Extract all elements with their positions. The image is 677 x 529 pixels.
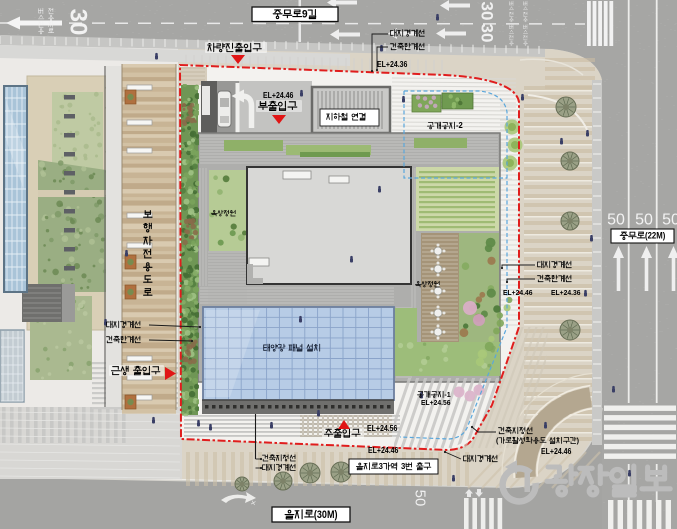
svg-text:3: 3	[379, 461, 384, 471]
svg-text:30: 30	[478, 2, 497, 21]
svg-text:50: 50	[635, 212, 653, 229]
svg-text:50: 50	[607, 212, 625, 229]
svg-text:(30M): (30M)	[314, 509, 338, 521]
svg-text:30: 30	[478, 24, 497, 43]
svg-text:-2: -2	[456, 121, 463, 130]
svg-text:EL+24.56: EL+24.56	[367, 424, 398, 433]
svg-text:50: 50	[412, 490, 429, 507]
svg-text:EL+24.46: EL+24.46	[541, 447, 572, 456]
svg-text:30: 30	[65, 9, 92, 36]
svg-text:EL+24.56: EL+24.56	[421, 398, 451, 407]
svg-text:3: 3	[401, 461, 406, 471]
svg-text:EL+24.46: EL+24.46	[263, 91, 294, 100]
svg-text:EL+24.36: EL+24.36	[551, 288, 581, 297]
svg-text:EL+24.46: EL+24.46	[503, 288, 533, 297]
svg-text:9: 9	[302, 9, 308, 21]
svg-text:(22M): (22M)	[645, 231, 665, 241]
svg-text:EL+24.36: EL+24.36	[377, 60, 408, 69]
svg-text:50: 50	[662, 212, 677, 229]
svg-text:EL+24.46: EL+24.46	[368, 446, 399, 455]
